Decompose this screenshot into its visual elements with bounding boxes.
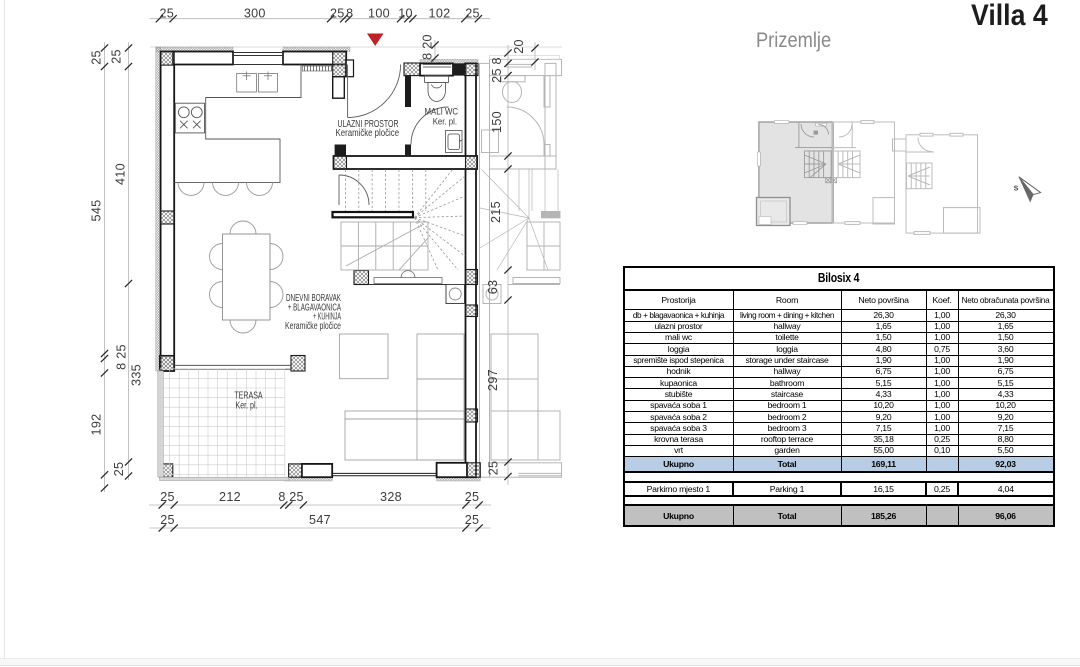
svg-text:192: 192 <box>90 414 104 436</box>
svg-text:20: 20 <box>512 39 526 54</box>
svg-text:25: 25 <box>289 490 304 504</box>
svg-text:25: 25 <box>465 490 480 504</box>
svg-text:335: 335 <box>130 364 144 386</box>
svg-text:212: 212 <box>219 490 241 504</box>
svg-text:25: 25 <box>487 461 501 476</box>
svg-text:25: 25 <box>160 490 175 504</box>
svg-text:100: 100 <box>368 6 390 20</box>
svg-text:25 8: 25 8 <box>490 57 504 83</box>
svg-text:215: 215 <box>489 201 503 223</box>
svg-text:25: 25 <box>465 6 480 20</box>
svg-text:102: 102 <box>429 6 451 20</box>
svg-text:297: 297 <box>486 369 500 391</box>
svg-text:328: 328 <box>380 490 402 504</box>
svg-text:Keramičke pločice: Keramičke pločice <box>285 321 341 332</box>
svg-text:Keramičke pločice: Keramičke pločice <box>336 128 400 139</box>
svg-text:10: 10 <box>398 6 413 20</box>
svg-text:545: 545 <box>90 200 104 222</box>
svg-text:8 20: 8 20 <box>420 34 434 60</box>
svg-text:8 25: 8 25 <box>115 344 129 370</box>
svg-text:25: 25 <box>160 513 175 527</box>
svg-text:300: 300 <box>244 6 266 20</box>
svg-text:Ker. pl.: Ker. pl. <box>236 401 258 412</box>
svg-text:25: 25 <box>112 462 126 477</box>
svg-text:Ker. pl.: Ker. pl. <box>433 117 457 127</box>
svg-text:410: 410 <box>114 163 128 185</box>
svg-text:s: s <box>1014 183 1019 193</box>
svg-text:25: 25 <box>110 49 124 64</box>
svg-text:MALI WC: MALI WC <box>425 106 459 116</box>
svg-text:25: 25 <box>330 6 345 20</box>
svg-text:25: 25 <box>465 513 480 527</box>
svg-text:63: 63 <box>486 280 500 295</box>
svg-text:25: 25 <box>90 50 104 65</box>
svg-text:8: 8 <box>278 490 285 504</box>
svg-text:25: 25 <box>159 6 174 20</box>
svg-text:547: 547 <box>309 513 331 527</box>
svg-text:8: 8 <box>346 6 353 20</box>
svg-text:150: 150 <box>490 111 504 133</box>
